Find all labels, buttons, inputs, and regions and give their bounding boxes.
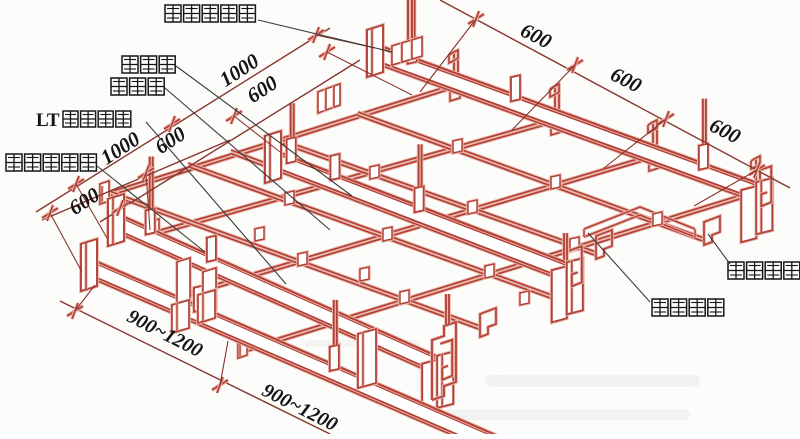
svg-text:LT: LT (36, 110, 60, 131)
